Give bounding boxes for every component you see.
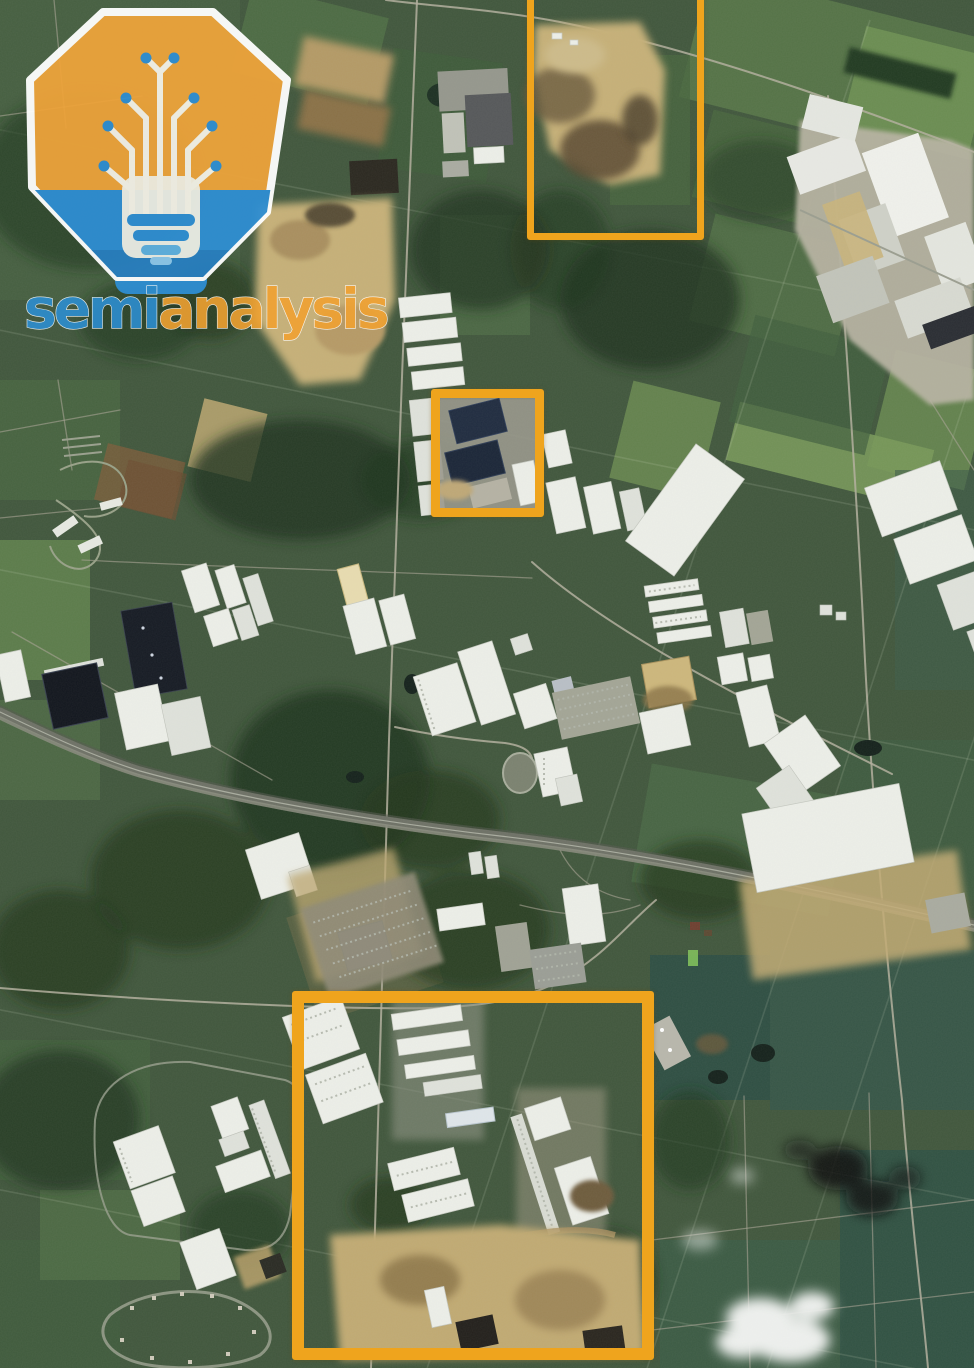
brand-wordmark: semianalysis bbox=[24, 277, 388, 341]
satellite-basemap: semianalysis bbox=[0, 0, 974, 1368]
brand-wordmark-semi: semi bbox=[24, 277, 158, 341]
satellite-screenshot: semianalysis bbox=[0, 0, 974, 1368]
brand-wordmark-analysis: analysis bbox=[158, 277, 388, 341]
